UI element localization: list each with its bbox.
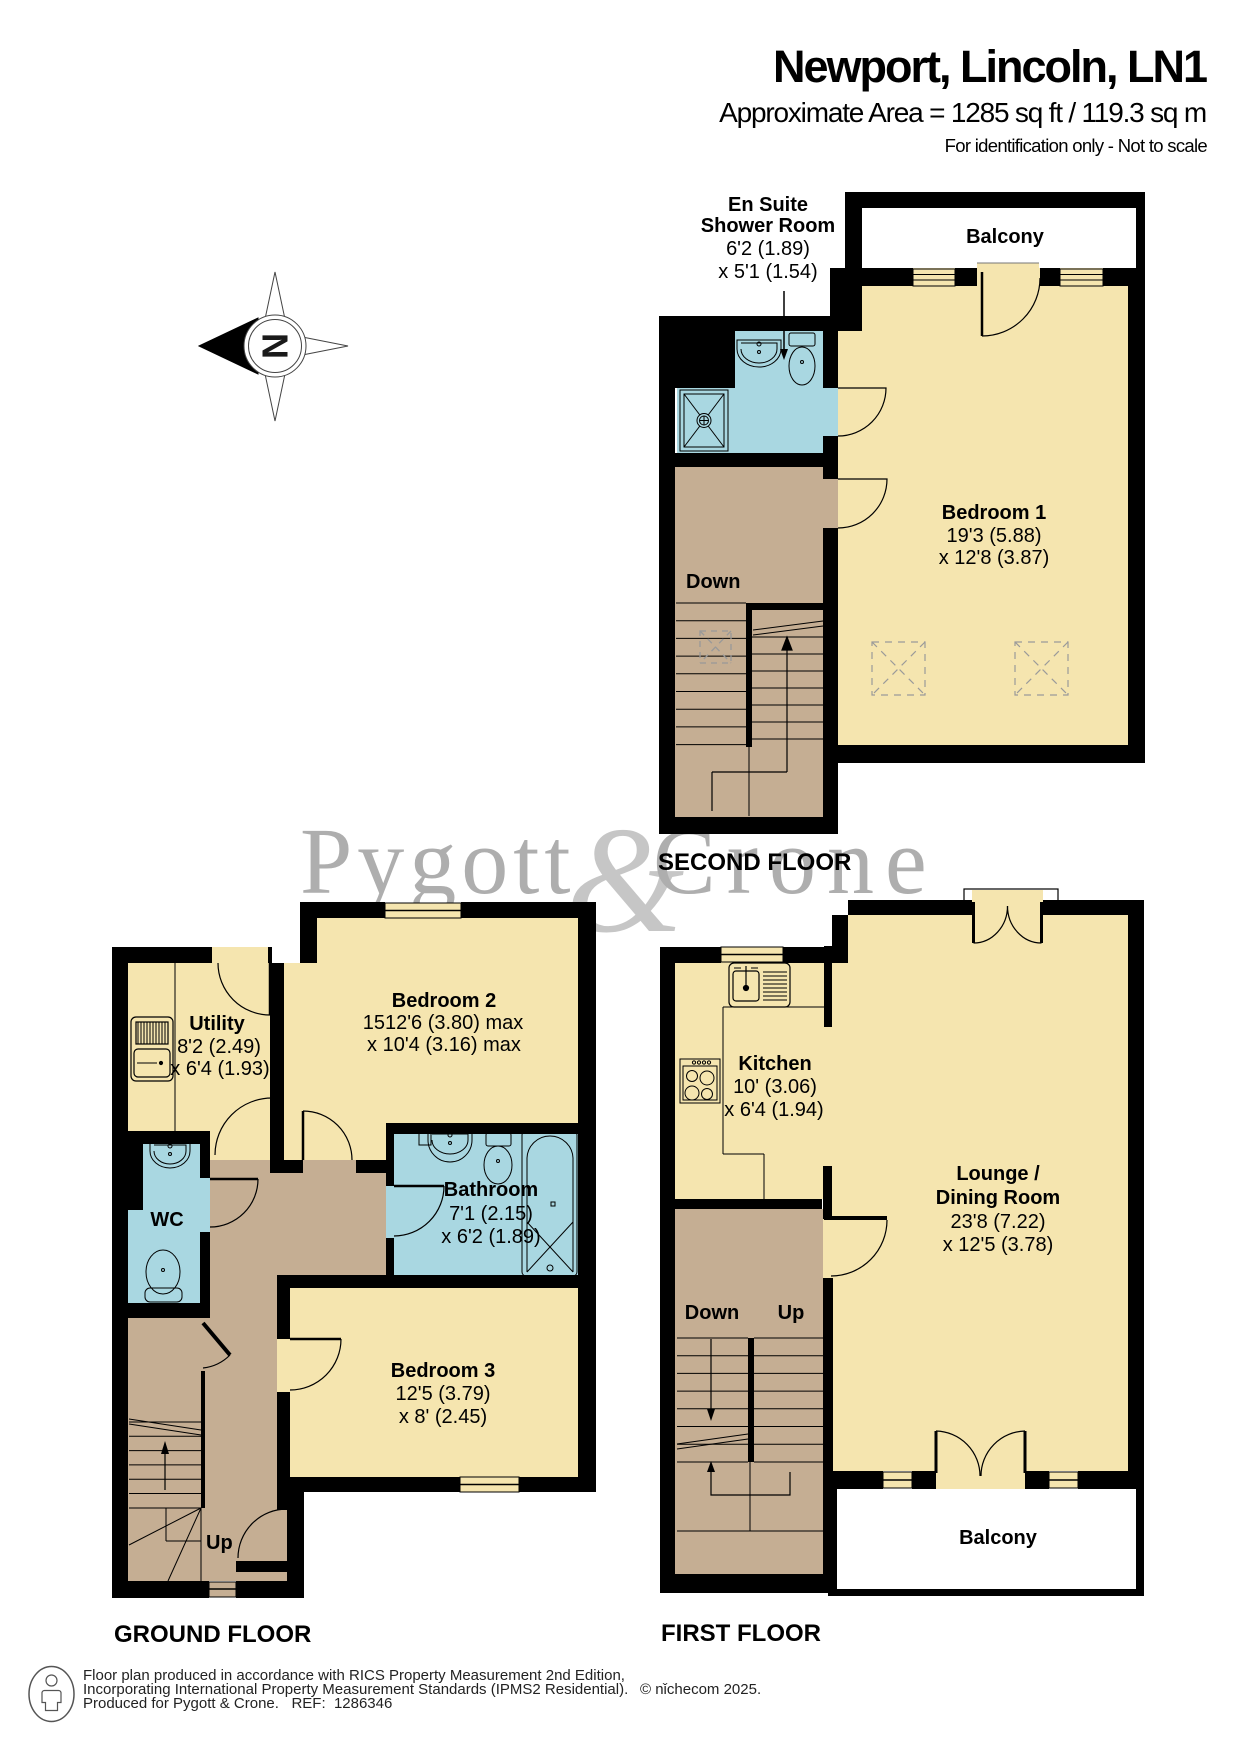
svg-text:Approximate Area = 1285 sq ft: Approximate Area = 1285 sq ft / 119.3 sq…	[719, 97, 1206, 128]
svg-text:Balcony: Balcony	[959, 1527, 1038, 1549]
svg-text:For identification only - Not: For identification only - Not to scale	[945, 135, 1208, 156]
svg-text:x 6'4 (1.94): x 6'4 (1.94)	[724, 1099, 823, 1121]
svg-text:GROUND FLOOR: GROUND FLOOR	[114, 1621, 311, 1648]
svg-text:Kitchen: Kitchen	[738, 1053, 811, 1075]
svg-text:x 8' (2.45): x 8' (2.45)	[399, 1406, 487, 1428]
svg-text:Dining Room: Dining Room	[936, 1187, 1060, 1209]
svg-text:Down: Down	[686, 571, 740, 593]
svg-text:12'5 (3.79): 12'5 (3.79)	[396, 1383, 491, 1405]
svg-text:Bedroom 2: Bedroom 2	[392, 990, 496, 1012]
svg-text:19'3 (5.88): 19'3 (5.88)	[947, 525, 1042, 547]
svg-text:Newport, Lincoln, LN1: Newport, Lincoln, LN1	[773, 41, 1207, 92]
svg-text:N: N	[255, 333, 296, 359]
svg-text:x 10'4 (3.16) max: x 10'4 (3.16) max	[367, 1034, 521, 1056]
svg-text:x 5'1 (1.54): x 5'1 (1.54)	[718, 261, 817, 283]
svg-text:Bathroom: Bathroom	[444, 1179, 538, 1201]
svg-text:23'8 (7.22): 23'8 (7.22)	[951, 1211, 1046, 1233]
svg-text:WC: WC	[150, 1209, 183, 1231]
svg-text:8'2 (2.49): 8'2 (2.49)	[177, 1036, 261, 1058]
svg-text:Lounge /: Lounge /	[956, 1163, 1040, 1185]
svg-text:x 6'2 (1.89): x 6'2 (1.89)	[441, 1226, 540, 1248]
svg-text:Utility: Utility	[189, 1013, 245, 1035]
svg-text:Shower Room: Shower Room	[701, 215, 835, 237]
svg-text:En Suite: En Suite	[728, 194, 808, 216]
svg-text:Produced for Pygott & Crone.: Produced for Pygott & Crone. REF: 128634…	[83, 1695, 392, 1712]
svg-text:Up: Up	[778, 1302, 805, 1324]
svg-text:Bedroom 3: Bedroom 3	[391, 1360, 495, 1382]
svg-text:Bedroom 1: Bedroom 1	[942, 502, 1046, 524]
svg-text:Pygott: Pygott	[300, 810, 576, 914]
svg-text:Balcony: Balcony	[966, 226, 1045, 248]
svg-text:Up: Up	[206, 1532, 233, 1554]
svg-text:x 6'4 (1.93): x 6'4 (1.93)	[170, 1058, 269, 1080]
svg-text:FIRST FLOOR: FIRST FLOOR	[661, 1620, 821, 1647]
svg-text:1512'6 (3.80) max: 1512'6 (3.80) max	[363, 1012, 524, 1034]
svg-text:x 12'5 (3.78): x 12'5 (3.78)	[943, 1234, 1054, 1256]
svg-text:7'1 (2.15): 7'1 (2.15)	[449, 1203, 533, 1225]
svg-text:10' (3.06): 10' (3.06)	[733, 1076, 817, 1098]
svg-text:6'2 (1.89): 6'2 (1.89)	[726, 238, 810, 260]
svg-text:© nǐchecom 2025.: © nǐchecom 2025.	[640, 1681, 761, 1698]
svg-text:x 12'8 (3.87): x 12'8 (3.87)	[939, 547, 1050, 569]
svg-text:Down: Down	[685, 1302, 739, 1324]
svg-text:SECOND FLOOR: SECOND FLOOR	[658, 849, 851, 876]
